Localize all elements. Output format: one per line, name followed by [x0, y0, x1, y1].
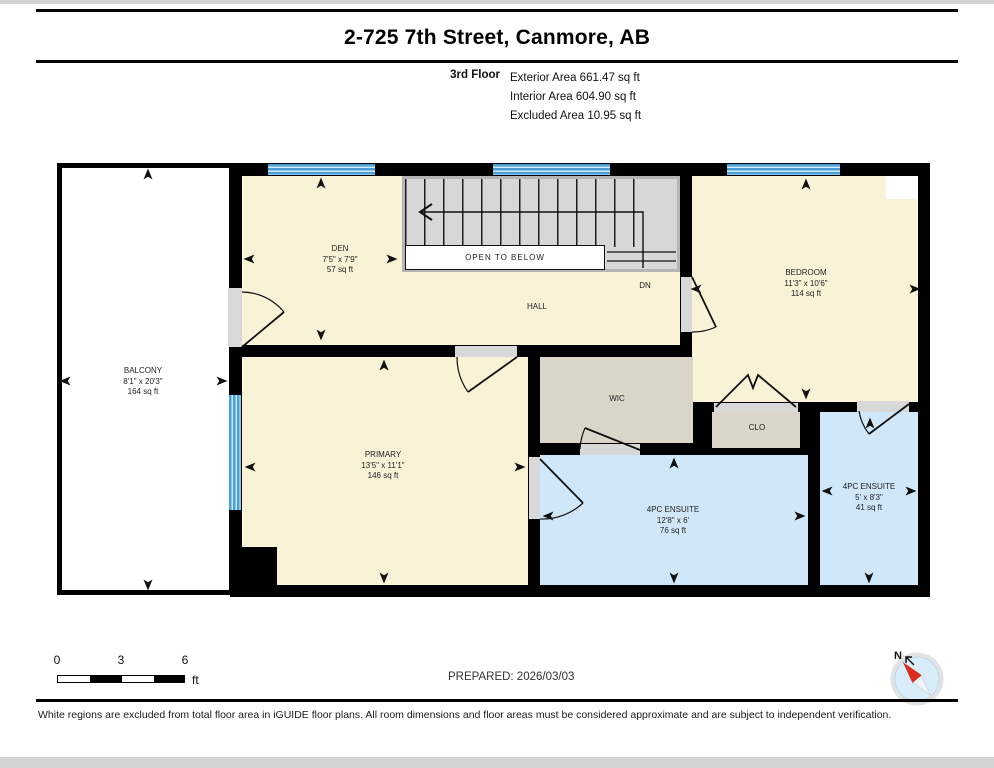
open-to-below-box: OPEN TO BELOW [405, 245, 605, 270]
primary-label: PRIMARY 13'5" x 11'1" 146 sq ft [361, 450, 404, 482]
scale-unit-label: ft [192, 673, 199, 687]
primary-wall-notch [242, 547, 277, 585]
hall-label: HALL [527, 302, 547, 313]
floorplan-page: 2-725 7th Street, Canmore, AB 3rd Floor … [0, 0, 994, 768]
north-label: N [894, 650, 902, 662]
scale-tick-3: 3 [118, 653, 125, 667]
footer-divider [36, 699, 958, 702]
door-opening-primary [455, 346, 517, 357]
bedroom-label: BEDROOM 11'3" x 10'6" 114 sq ft [784, 268, 827, 300]
window-primary-icon [229, 395, 241, 510]
scale-bar-segments [57, 675, 185, 683]
door-opening-ensuite-small [857, 401, 909, 412]
prepared-date: PREPARED: 2026/03/03 [448, 671, 574, 683]
window-stairs-icon [493, 164, 610, 175]
window-den-icon [268, 164, 375, 175]
scale-tick-0: 0 [54, 653, 61, 667]
ensuite-small-label: 4PC ENSUITE 5' x 8'3" 41 sq ft [843, 482, 895, 514]
door-opening-ensuite-main [529, 457, 540, 519]
clo-label: CLO [749, 423, 765, 434]
floor-plan: OPEN TO BELOW BALCONY 8'1" x 20'3" 164 s… [0, 0, 994, 768]
stair-treads [405, 179, 645, 247]
closet-track [714, 403, 798, 412]
window-bedroom-icon [727, 164, 840, 175]
scale-tick-6: 6 [182, 653, 189, 667]
door-opening-wic [580, 444, 640, 455]
door-opening-balcony [228, 288, 242, 347]
wic-label: WIC [609, 394, 625, 405]
ensuite-main-label: 4PC ENSUITE 12'8" x 6' 76 sq ft [647, 505, 699, 537]
footer-disclaimer: White regions are excluded from total fl… [38, 709, 891, 721]
den-label: DEN 7'5" x 7'9" 57 sq ft [323, 244, 358, 276]
stairs-down-label: DN [639, 281, 651, 292]
door-opening-bedroom [681, 277, 692, 332]
bedroom-excluded-cutout [886, 176, 918, 199]
balcony-label: BALCONY 8'1" x 20'3" 164 sq ft [123, 366, 162, 398]
open-to-below-label: OPEN TO BELOW [465, 253, 545, 262]
